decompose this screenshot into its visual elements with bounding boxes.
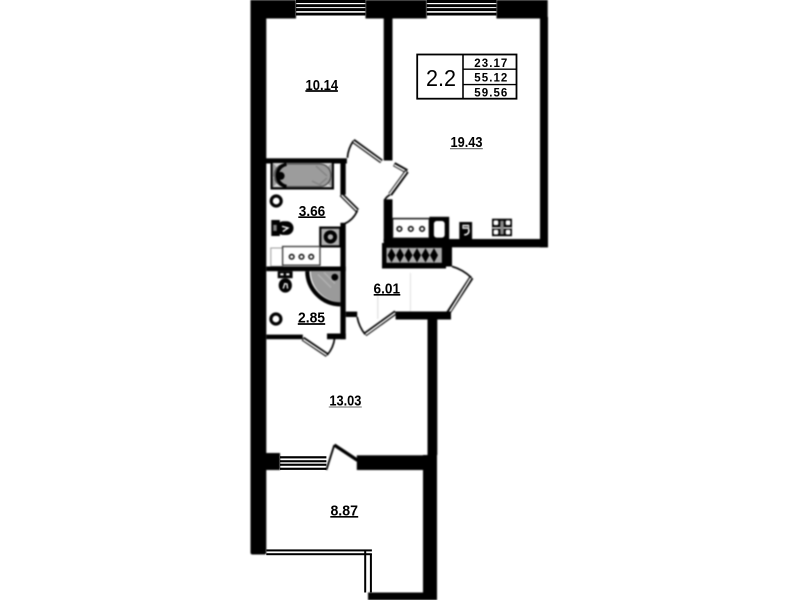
svg-text:55.12: 55.12	[474, 73, 507, 85]
svg-text:23.17: 23.17	[474, 58, 507, 70]
svg-text:59.56: 59.56	[474, 87, 507, 99]
svg-text:2.2: 2.2	[426, 65, 456, 91]
